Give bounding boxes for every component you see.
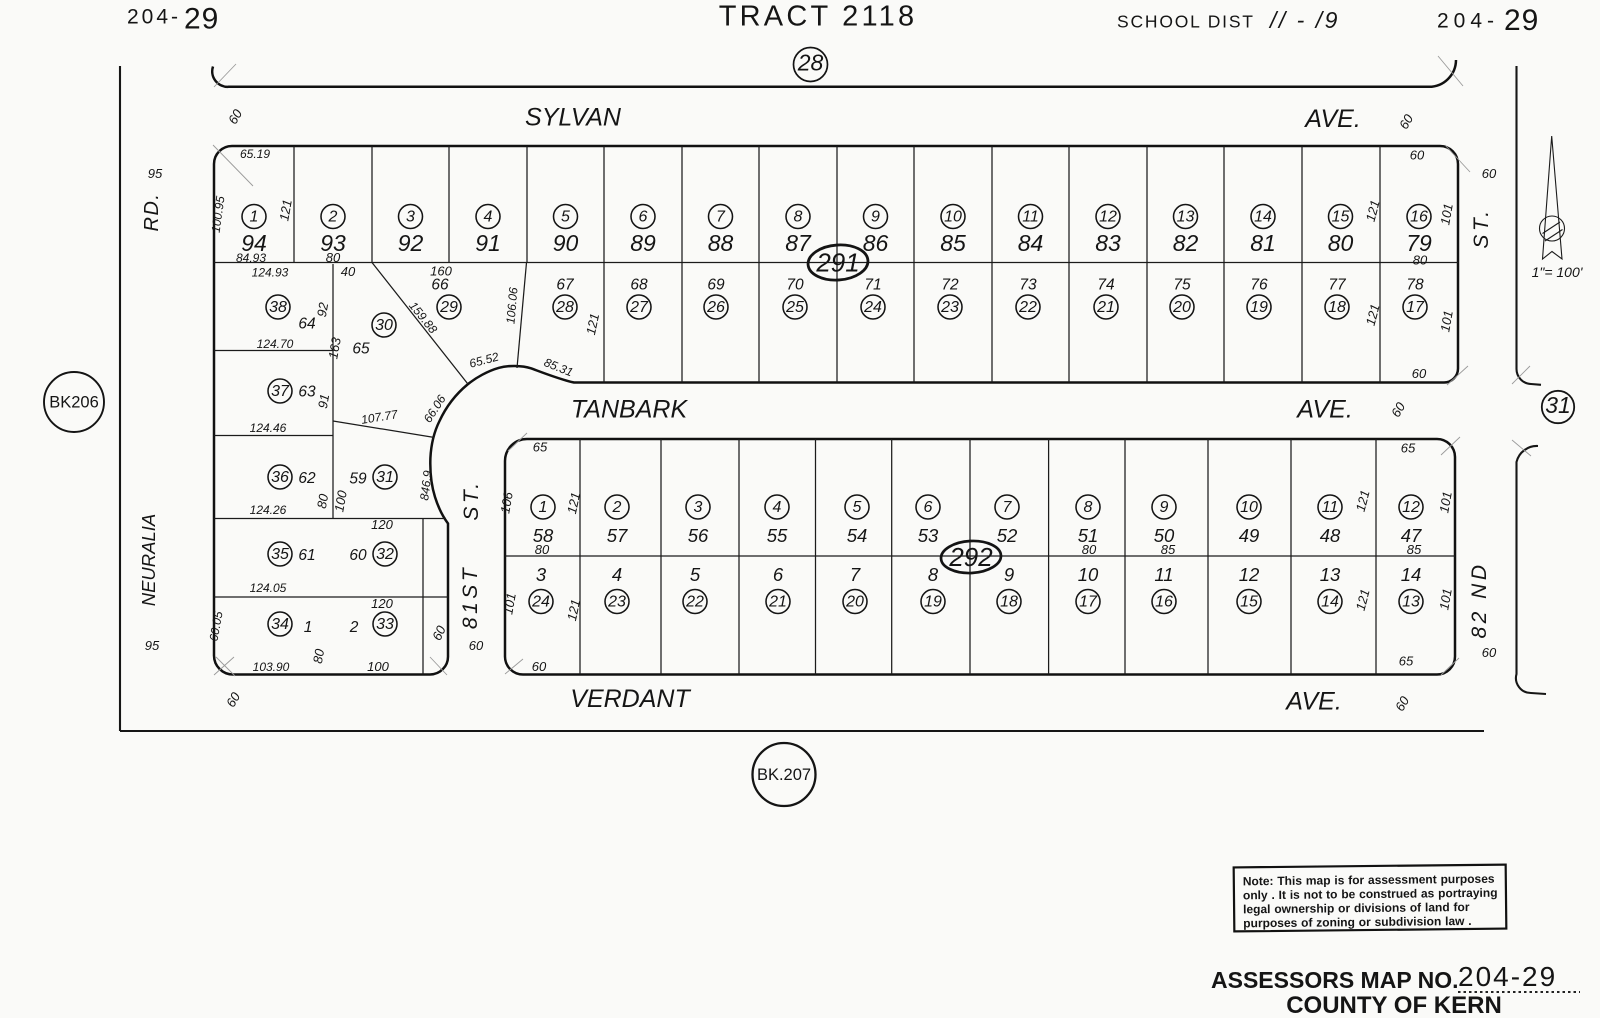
svg-text:80: 80 bbox=[310, 647, 327, 665]
svg-text:90: 90 bbox=[553, 230, 579, 256]
svg-text:26: 26 bbox=[706, 299, 725, 316]
svg-text:60: 60 bbox=[1388, 399, 1409, 420]
svg-text:76: 76 bbox=[1250, 277, 1268, 294]
svg-text:83: 83 bbox=[1095, 230, 1121, 256]
svg-text:6: 6 bbox=[773, 564, 784, 585]
svg-text:64: 64 bbox=[298, 316, 316, 333]
svg-text:60: 60 bbox=[429, 623, 449, 643]
svg-text:101: 101 bbox=[1437, 309, 1456, 333]
svg-text:11: 11 bbox=[1022, 209, 1039, 226]
svg-text:23: 23 bbox=[607, 594, 626, 611]
svg-text:85.31: 85.31 bbox=[542, 355, 575, 379]
svg-text:29: 29 bbox=[1504, 4, 1539, 37]
svg-text:VERDANT: VERDANT bbox=[570, 685, 691, 713]
svg-text:4: 4 bbox=[773, 499, 782, 516]
svg-text:AVE.: AVE. bbox=[1303, 105, 1361, 133]
svg-text:7: 7 bbox=[1003, 499, 1013, 516]
svg-text:48: 48 bbox=[1320, 525, 1341, 546]
svg-text:NEURALIA: NEURALIA bbox=[138, 514, 159, 607]
svg-text:60: 60 bbox=[225, 106, 246, 127]
svg-text:86: 86 bbox=[863, 230, 889, 256]
svg-text:66: 66 bbox=[431, 277, 449, 294]
svg-text:80: 80 bbox=[1328, 230, 1354, 256]
svg-text:27: 27 bbox=[629, 299, 649, 316]
svg-text:9: 9 bbox=[1004, 564, 1014, 585]
svg-text:TRACT 2118: TRACT 2118 bbox=[719, 1, 918, 33]
svg-text:14: 14 bbox=[1321, 594, 1339, 611]
svg-text:24: 24 bbox=[863, 299, 882, 316]
svg-text:11: 11 bbox=[1322, 499, 1339, 516]
svg-text:23: 23 bbox=[940, 299, 959, 316]
svg-text:4: 4 bbox=[612, 564, 622, 585]
svg-text:100: 100 bbox=[331, 488, 350, 513]
svg-text:19: 19 bbox=[924, 594, 942, 611]
svg-text:66.06: 66.06 bbox=[421, 392, 449, 425]
svg-text:120: 120 bbox=[371, 517, 393, 532]
svg-text:84.93: 84.93 bbox=[236, 251, 266, 265]
svg-text:32: 32 bbox=[376, 546, 394, 563]
svg-text:3: 3 bbox=[694, 499, 703, 516]
svg-text:78: 78 bbox=[1406, 277, 1424, 294]
svg-text:22: 22 bbox=[1018, 299, 1037, 316]
svg-text:53: 53 bbox=[918, 525, 939, 546]
svg-text:60: 60 bbox=[1410, 148, 1425, 163]
svg-text:65: 65 bbox=[1401, 441, 1416, 456]
svg-text:ST.: ST. bbox=[1470, 207, 1493, 248]
svg-text:121: 121 bbox=[276, 198, 295, 222]
svg-text:34: 34 bbox=[271, 616, 289, 633]
svg-text:95: 95 bbox=[145, 638, 160, 653]
svg-text:101: 101 bbox=[1436, 587, 1455, 611]
svg-text:160: 160 bbox=[430, 264, 452, 279]
svg-text:65: 65 bbox=[352, 341, 370, 358]
svg-text:69: 69 bbox=[707, 277, 725, 294]
svg-text:10: 10 bbox=[944, 209, 962, 226]
svg-text:21: 21 bbox=[768, 594, 787, 611]
svg-text:13: 13 bbox=[1320, 564, 1341, 585]
svg-text:28: 28 bbox=[797, 50, 824, 76]
svg-text:106: 106 bbox=[497, 490, 516, 515]
svg-text:1"= 100': 1"= 100' bbox=[1532, 264, 1584, 280]
svg-text:4: 4 bbox=[484, 209, 493, 226]
svg-text:60.05: 60.05 bbox=[207, 610, 226, 642]
svg-text:55: 55 bbox=[767, 525, 788, 546]
svg-text:RD.: RD. bbox=[141, 193, 163, 232]
svg-text:62: 62 bbox=[298, 470, 316, 487]
svg-text:16: 16 bbox=[1155, 594, 1173, 611]
svg-text:SYLVAN: SYLVAN bbox=[525, 104, 622, 132]
svg-text:11: 11 bbox=[1154, 564, 1173, 585]
svg-text:purposes of zoning or subdivis: purposes of zoning or subdivision law . bbox=[1243, 914, 1471, 930]
svg-text:60: 60 bbox=[1412, 366, 1427, 381]
svg-text:28: 28 bbox=[555, 299, 574, 316]
svg-text:85: 85 bbox=[1407, 542, 1422, 557]
svg-text:37: 37 bbox=[271, 383, 290, 400]
svg-text:60: 60 bbox=[532, 659, 547, 674]
svg-text:56: 56 bbox=[688, 525, 709, 546]
svg-text:75: 75 bbox=[1173, 277, 1191, 294]
svg-text:40: 40 bbox=[341, 264, 356, 279]
svg-text:BK206: BK206 bbox=[49, 394, 99, 412]
svg-text:20: 20 bbox=[845, 594, 864, 611]
svg-text:72: 72 bbox=[941, 277, 959, 294]
svg-text:14: 14 bbox=[1401, 564, 1422, 585]
svg-text:84: 84 bbox=[1018, 230, 1044, 256]
svg-text:100: 100 bbox=[367, 659, 389, 674]
svg-text:10: 10 bbox=[1240, 499, 1258, 516]
svg-text:60: 60 bbox=[349, 547, 367, 564]
svg-text:17: 17 bbox=[1079, 594, 1098, 611]
svg-text:5: 5 bbox=[561, 209, 570, 226]
svg-text:25: 25 bbox=[785, 299, 804, 316]
svg-text:AVE.: AVE. bbox=[1284, 688, 1342, 716]
svg-text:15: 15 bbox=[1240, 594, 1258, 611]
svg-text:1: 1 bbox=[250, 209, 259, 226]
svg-text:35: 35 bbox=[271, 546, 289, 563]
svg-text:77: 77 bbox=[1328, 277, 1347, 294]
svg-text:85: 85 bbox=[940, 230, 966, 256]
svg-text:103.90: 103.90 bbox=[253, 660, 290, 674]
svg-text:8: 8 bbox=[1084, 499, 1093, 516]
svg-text:80: 80 bbox=[1413, 253, 1428, 268]
svg-text:TANBARK: TANBARK bbox=[571, 396, 689, 424]
svg-text:24: 24 bbox=[531, 594, 550, 611]
svg-text:120: 120 bbox=[371, 596, 393, 611]
svg-text:92: 92 bbox=[314, 301, 331, 319]
svg-text:204-: 204- bbox=[127, 6, 181, 29]
svg-text:88: 88 bbox=[708, 230, 734, 256]
svg-text:2: 2 bbox=[612, 499, 622, 516]
svg-text:80: 80 bbox=[326, 250, 341, 265]
svg-text:65.19: 65.19 bbox=[240, 147, 270, 161]
svg-text:12: 12 bbox=[1239, 564, 1260, 585]
svg-text:33: 33 bbox=[376, 616, 394, 633]
svg-text:3: 3 bbox=[536, 564, 547, 585]
svg-text:SCHOOL DIST: SCHOOL DIST bbox=[1117, 12, 1255, 32]
svg-text:124.93: 124.93 bbox=[252, 266, 289, 280]
svg-text:5: 5 bbox=[853, 499, 862, 516]
svg-text:ASSESSORS MAP NO.: ASSESSORS MAP NO. bbox=[1211, 967, 1459, 993]
svg-text:121: 121 bbox=[1353, 587, 1373, 612]
svg-text:100.95: 100.95 bbox=[209, 195, 228, 234]
svg-text:AVE.: AVE. bbox=[1295, 396, 1353, 424]
svg-text:107.77: 107.77 bbox=[360, 407, 400, 427]
svg-text:106.06: 106.06 bbox=[503, 286, 520, 324]
svg-text:204-: 204- bbox=[1437, 10, 1499, 33]
svg-text:82: 82 bbox=[1173, 230, 1199, 256]
svg-text:1: 1 bbox=[539, 499, 548, 516]
svg-text:// - /9: // - /9 bbox=[1268, 7, 1340, 33]
svg-text:68: 68 bbox=[630, 277, 648, 294]
svg-text:57: 57 bbox=[607, 525, 628, 546]
svg-text:8: 8 bbox=[928, 564, 939, 585]
svg-text:60: 60 bbox=[223, 689, 244, 710]
svg-text:91: 91 bbox=[315, 393, 332, 410]
svg-text:59: 59 bbox=[349, 471, 367, 488]
svg-text:7: 7 bbox=[716, 209, 726, 226]
svg-text:1: 1 bbox=[304, 619, 313, 636]
svg-text:7: 7 bbox=[850, 564, 861, 585]
svg-text:60: 60 bbox=[1482, 645, 1497, 660]
svg-text:22: 22 bbox=[685, 594, 704, 611]
svg-text:80: 80 bbox=[314, 492, 331, 510]
svg-text:121: 121 bbox=[1353, 488, 1373, 513]
svg-text:ST.: ST. bbox=[460, 479, 483, 520]
svg-text:80: 80 bbox=[1082, 542, 1097, 557]
svg-text:18: 18 bbox=[1328, 299, 1346, 316]
svg-text:92: 92 bbox=[398, 230, 424, 256]
svg-text:49: 49 bbox=[1239, 525, 1260, 546]
svg-text:18: 18 bbox=[1000, 594, 1018, 611]
svg-text:10: 10 bbox=[1078, 564, 1099, 585]
svg-text:124.70: 124.70 bbox=[257, 337, 294, 351]
svg-text:292: 292 bbox=[948, 542, 993, 572]
svg-text:54: 54 bbox=[847, 525, 868, 546]
svg-text:71: 71 bbox=[864, 277, 881, 294]
svg-text:60: 60 bbox=[1396, 111, 1417, 132]
svg-text:65: 65 bbox=[1399, 654, 1414, 669]
svg-text:14: 14 bbox=[1254, 209, 1272, 226]
svg-text:159.88: 159.88 bbox=[406, 299, 440, 337]
svg-text:12: 12 bbox=[1099, 209, 1117, 226]
svg-text:52: 52 bbox=[997, 525, 1018, 546]
svg-text:87: 87 bbox=[785, 230, 812, 256]
svg-text:80: 80 bbox=[535, 542, 550, 557]
svg-text:91: 91 bbox=[475, 230, 501, 256]
svg-text:20: 20 bbox=[1172, 299, 1191, 316]
svg-text:9: 9 bbox=[871, 209, 880, 226]
svg-text:12: 12 bbox=[1402, 499, 1420, 516]
svg-text:COUNTY OF KERN: COUNTY OF KERN bbox=[1286, 992, 1502, 1018]
svg-text:95: 95 bbox=[148, 166, 163, 181]
svg-text:65: 65 bbox=[533, 440, 548, 455]
svg-text:63: 63 bbox=[298, 384, 316, 401]
svg-text:17: 17 bbox=[1406, 299, 1425, 316]
svg-text:BK.207: BK.207 bbox=[757, 766, 811, 784]
svg-text:31: 31 bbox=[1545, 392, 1571, 418]
svg-text:29: 29 bbox=[184, 3, 219, 36]
svg-text:3: 3 bbox=[406, 209, 415, 226]
svg-text:21: 21 bbox=[1096, 299, 1115, 316]
svg-text:124.26: 124.26 bbox=[250, 503, 287, 517]
svg-text:124.46: 124.46 bbox=[250, 421, 287, 435]
svg-text:2: 2 bbox=[328, 209, 338, 226]
svg-text:121: 121 bbox=[583, 312, 602, 336]
svg-text:2: 2 bbox=[349, 619, 359, 636]
svg-text:85: 85 bbox=[1161, 542, 1176, 557]
svg-text:8: 8 bbox=[794, 209, 803, 226]
svg-text:101: 101 bbox=[500, 592, 519, 616]
svg-text:74: 74 bbox=[1097, 277, 1115, 294]
svg-text:36: 36 bbox=[271, 469, 289, 486]
svg-text:9: 9 bbox=[1160, 499, 1169, 516]
svg-text:204-29: 204-29 bbox=[1458, 961, 1557, 992]
svg-text:29: 29 bbox=[439, 299, 458, 316]
svg-text:81: 81 bbox=[1250, 230, 1276, 256]
svg-text:15: 15 bbox=[1332, 209, 1350, 226]
svg-text:38: 38 bbox=[269, 299, 287, 316]
svg-text:60: 60 bbox=[469, 638, 484, 653]
svg-text:13: 13 bbox=[1402, 594, 1420, 611]
svg-text:124.05: 124.05 bbox=[250, 581, 287, 595]
svg-text:6: 6 bbox=[924, 499, 933, 516]
svg-text:16: 16 bbox=[1410, 209, 1428, 226]
svg-text:60: 60 bbox=[1482, 166, 1497, 181]
svg-text:61: 61 bbox=[298, 547, 315, 564]
svg-text:19: 19 bbox=[1250, 299, 1268, 316]
svg-text:82 ND: 82 ND bbox=[1468, 561, 1491, 638]
svg-text:163: 163 bbox=[325, 335, 344, 360]
svg-text:31: 31 bbox=[376, 469, 394, 486]
svg-text:5: 5 bbox=[690, 564, 701, 585]
svg-text:67: 67 bbox=[556, 277, 575, 294]
svg-text:13: 13 bbox=[1177, 209, 1195, 226]
svg-text:60: 60 bbox=[1392, 693, 1413, 714]
svg-text:846.9: 846.9 bbox=[417, 469, 435, 501]
svg-text:73: 73 bbox=[1019, 277, 1037, 294]
svg-text:291: 291 bbox=[815, 248, 859, 278]
svg-text:101: 101 bbox=[1436, 490, 1455, 514]
svg-text:30: 30 bbox=[375, 317, 393, 334]
svg-text:6: 6 bbox=[639, 209, 648, 226]
svg-text:101: 101 bbox=[1437, 202, 1456, 226]
svg-text:81ST: 81ST bbox=[459, 565, 482, 629]
svg-text:89: 89 bbox=[630, 230, 656, 256]
svg-text:70: 70 bbox=[786, 277, 804, 294]
